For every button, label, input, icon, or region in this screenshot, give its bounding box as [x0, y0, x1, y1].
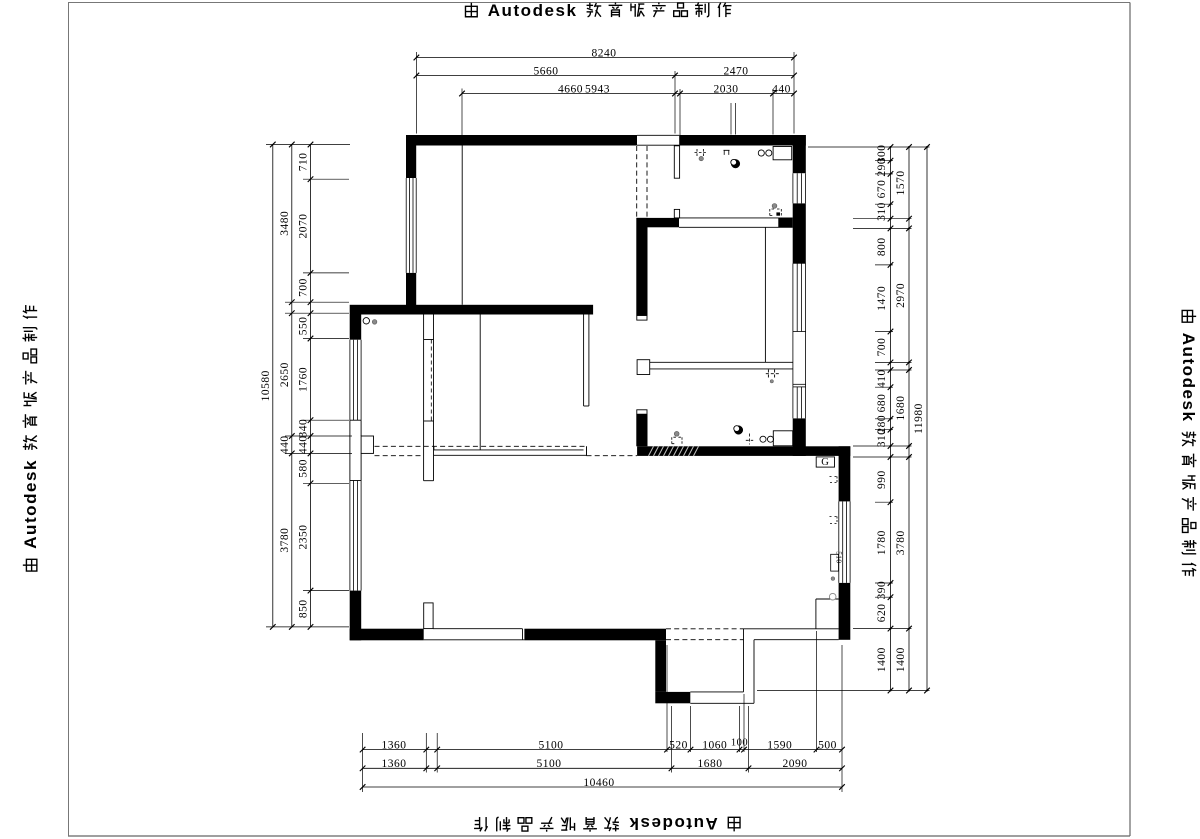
svg-text:10580: 10580 [260, 370, 272, 401]
svg-text:2970: 2970 [895, 283, 907, 308]
svg-text:2650: 2650 [279, 362, 291, 387]
svg-text:1570: 1570 [895, 170, 907, 195]
svg-text:5100: 5100 [537, 758, 562, 770]
svg-text:1780: 1780 [876, 530, 888, 555]
svg-text:Autodesk: Autodesk [1179, 333, 1198, 423]
svg-text:1400: 1400 [876, 647, 888, 672]
svg-text:1680: 1680 [698, 758, 723, 770]
svg-text:2030: 2030 [714, 83, 739, 95]
svg-text:2070: 2070 [298, 214, 310, 239]
svg-text:Autodesk: Autodesk [21, 459, 40, 549]
svg-text:1360: 1360 [382, 758, 407, 770]
svg-text:340: 340 [298, 419, 310, 438]
svg-text:620: 620 [876, 604, 888, 623]
svg-text:G: G [821, 457, 829, 468]
svg-text:670: 670 [876, 180, 888, 199]
svg-text:3780: 3780 [895, 530, 907, 555]
svg-text:2350: 2350 [298, 525, 310, 550]
svg-text:990: 990 [876, 470, 888, 489]
svg-text:1470: 1470 [876, 286, 888, 311]
svg-text:8240: 8240 [592, 47, 617, 59]
svg-text:410: 410 [876, 369, 888, 388]
svg-text:11980: 11980 [913, 403, 925, 434]
svg-text:1760: 1760 [298, 367, 310, 392]
svg-text:3780: 3780 [279, 528, 291, 553]
svg-text:5660: 5660 [534, 65, 559, 77]
svg-text:1400: 1400 [895, 647, 907, 672]
svg-text:Autodesk: Autodesk [628, 814, 718, 833]
svg-text:1360: 1360 [382, 739, 407, 751]
svg-text:680: 680 [876, 394, 888, 413]
svg-text:10460: 10460 [583, 777, 614, 789]
svg-text:390: 390 [876, 581, 888, 600]
svg-text:1590: 1590 [767, 739, 792, 751]
svg-text:500: 500 [818, 739, 837, 751]
svg-text:550: 550 [298, 316, 310, 335]
svg-text:3480: 3480 [279, 211, 291, 236]
svg-text:1680: 1680 [895, 396, 907, 421]
svg-text:440: 440 [298, 435, 310, 454]
svg-text:700: 700 [876, 338, 888, 357]
svg-text:580: 580 [298, 459, 310, 478]
svg-text:310: 310 [876, 429, 888, 448]
svg-text:290: 290 [876, 158, 888, 177]
svg-text:700: 700 [298, 278, 310, 297]
svg-text:310: 310 [876, 202, 888, 221]
svg-text:Autodesk: Autodesk [488, 1, 578, 20]
svg-text:510: 510 [835, 551, 844, 563]
svg-text:4660: 4660 [558, 83, 583, 95]
svg-text:800: 800 [876, 237, 888, 256]
svg-text:850: 850 [298, 599, 310, 618]
svg-text:2470: 2470 [724, 65, 749, 77]
svg-text:440: 440 [772, 83, 791, 95]
svg-text:5943: 5943 [585, 83, 610, 95]
svg-text:520: 520 [669, 739, 688, 751]
svg-text:5100: 5100 [539, 739, 564, 751]
svg-text:1060: 1060 [702, 739, 727, 751]
svg-text:710: 710 [298, 152, 310, 171]
svg-text:440: 440 [279, 435, 291, 454]
svg-text:2090: 2090 [783, 758, 808, 770]
